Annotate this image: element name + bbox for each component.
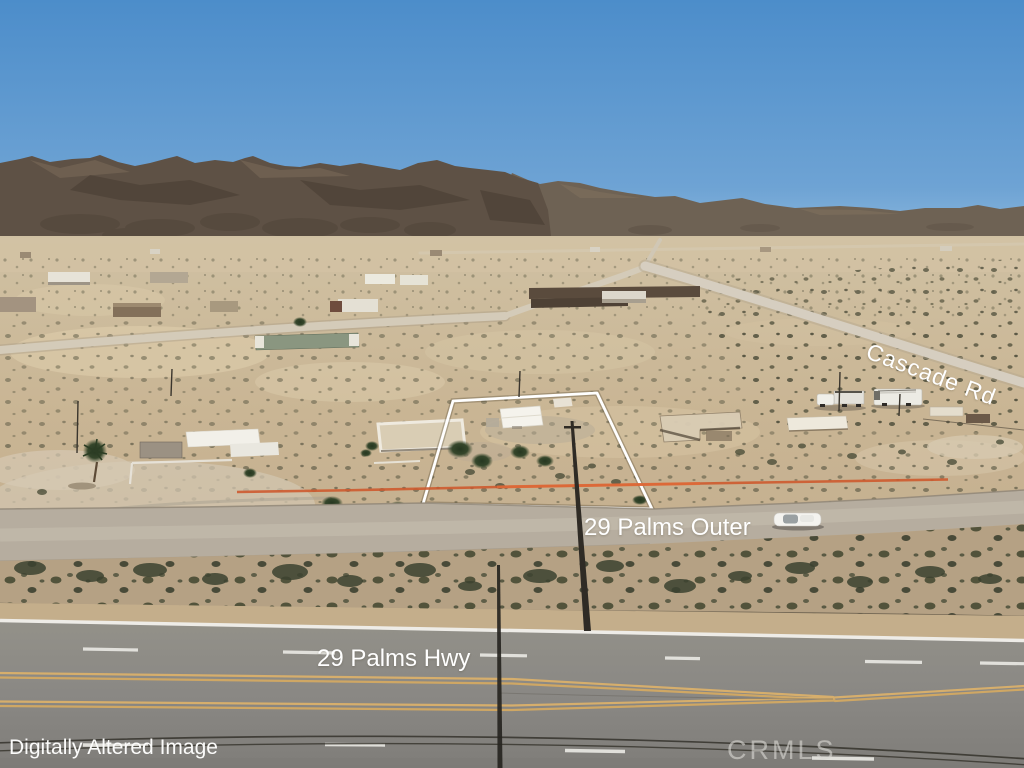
aerial-photo: Cascade Rd 29 Palms Outer 29 Palms Hwy D… xyxy=(0,0,1024,768)
road-label-highway: 29 Palms Hwy xyxy=(317,645,470,673)
disclaimer-text: Digitally Altered Image xyxy=(9,736,218,760)
photo-graphics xyxy=(0,0,1024,768)
white-car xyxy=(772,513,824,531)
crmls-watermark: CRMLS xyxy=(727,735,837,766)
road-label-outer: 29 Palms Outer xyxy=(584,514,751,542)
